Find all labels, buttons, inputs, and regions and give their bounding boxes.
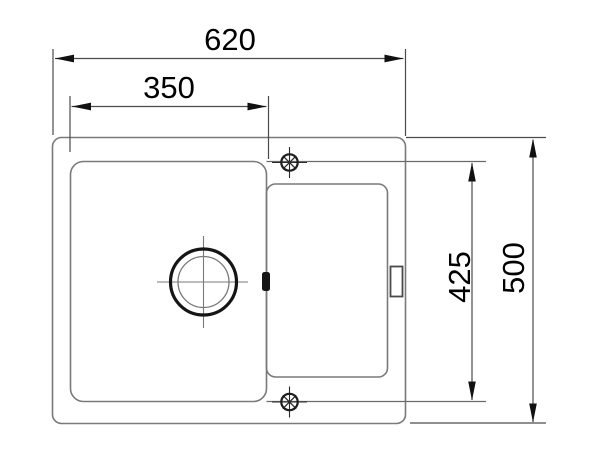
dim-500-arrow-top <box>529 139 537 158</box>
dimension-620: 620 <box>53 22 406 136</box>
dim-620-label: 620 <box>204 22 256 57</box>
dim-350-arrow-left <box>72 103 91 111</box>
dim-620-arrow-right <box>385 55 404 63</box>
dim-350-arrow-right <box>248 103 267 111</box>
drawing-svg: 620 350 425 500 <box>0 0 600 450</box>
accessory-slot <box>391 267 403 297</box>
drain-hole <box>157 236 248 328</box>
dim-425-arrow-bottom <box>468 382 476 401</box>
dim-620-arrow-left <box>55 55 74 63</box>
tap-hole-bottom <box>272 387 307 418</box>
dim-350-label: 350 <box>143 70 195 105</box>
drainer-outline <box>267 184 388 377</box>
tap-hole-top <box>272 147 307 178</box>
dim-500-label: 500 <box>496 242 531 294</box>
dim-425-arrow-top <box>468 163 476 182</box>
dim-500-arrow-bottom <box>529 404 537 423</box>
dimension-425: 425 <box>442 163 477 401</box>
overflow-mark <box>262 272 270 291</box>
sink-dimension-drawing: 620 350 425 500 <box>0 0 600 450</box>
dimension-350: 350 <box>70 70 269 159</box>
dim-425-label: 425 <box>442 251 477 303</box>
